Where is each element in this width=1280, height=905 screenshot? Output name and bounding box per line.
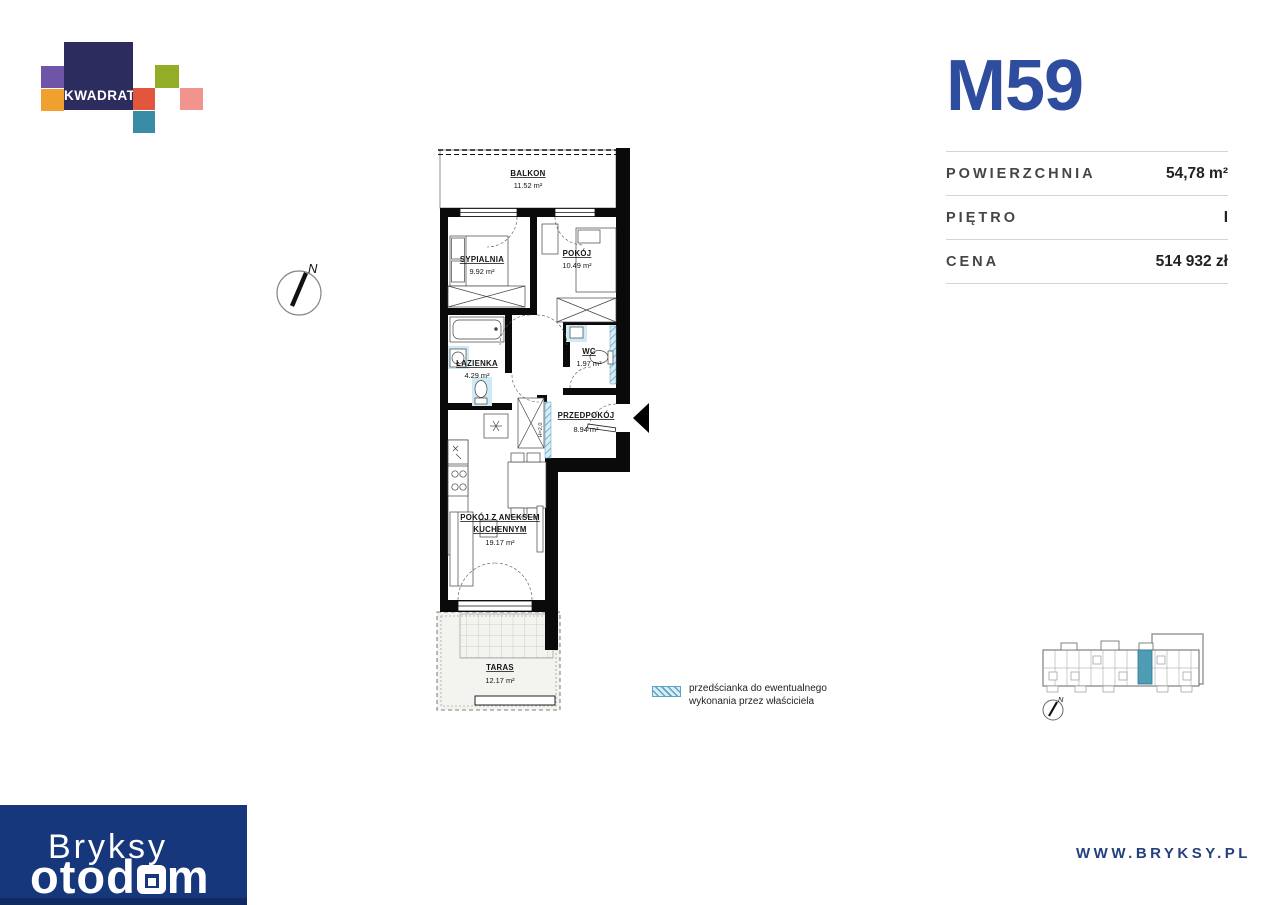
room-label-przedpokoj: PRZEDPOKÓJ xyxy=(558,411,615,420)
room-area-sypialnia: 9.92 m² xyxy=(469,267,495,276)
agency-logo-box: Bryksy otodm xyxy=(0,805,247,905)
room-label-pokoj-z-aneksem-2: KUCHENNYM xyxy=(473,525,526,534)
detail-label: PIĘTRO xyxy=(946,210,1018,226)
terrace-area xyxy=(437,612,560,710)
compass-north-label: N xyxy=(308,261,318,276)
kwadrat-logo: KWADRAT xyxy=(41,42,246,134)
website-url: WWW.BRYKSY.PL xyxy=(1076,845,1251,862)
watermark-square-glyph xyxy=(137,865,166,894)
room-label-taras: TARAS xyxy=(486,663,514,672)
detail-value: I xyxy=(1224,209,1228,227)
room-label-balkon: BALKON xyxy=(510,169,545,178)
room-area-balkon: 11.52 m² xyxy=(514,181,543,190)
balcony-area xyxy=(438,150,618,208)
room-label-wc: WC xyxy=(582,347,596,356)
site-plan-thumbnail: N xyxy=(1035,622,1205,724)
site-plan-unit-highlight xyxy=(1138,650,1152,684)
room-area-taras: 12.17 m² xyxy=(485,676,515,685)
room-area-pokoj-z-aneksem: 19.17 m² xyxy=(485,538,515,547)
room-label-lazienka: ŁAZIENKA xyxy=(456,359,498,368)
room-area-pokoj: 10.49 m² xyxy=(562,261,592,270)
logo-wordmark: KWADRAT xyxy=(64,88,133,103)
logo-square-navy: KWADRAT xyxy=(64,42,133,110)
legend-line1: przedścianka do ewentualnego xyxy=(689,683,827,696)
site-compass-north-label: N xyxy=(1058,695,1064,704)
logo-square-purple xyxy=(41,66,64,88)
room-area-lazienka: 4.29 m² xyxy=(464,371,490,380)
logo-square-pink xyxy=(180,88,203,110)
compass-icon: N xyxy=(274,258,328,320)
otodom-watermark: otodm xyxy=(30,849,210,904)
unit-details-table: POWIERZCHNIA 54,78 m² PIĘTRO I CENA 514 … xyxy=(946,151,1228,284)
watermark-text-2: m xyxy=(167,850,210,903)
logo-square-red xyxy=(133,88,155,110)
room-label-pokoj: POKÓJ xyxy=(563,249,592,258)
legend-hatch-swatch xyxy=(652,686,681,697)
legend-line2: wykonania przez właściciela xyxy=(689,696,827,709)
partition-hatch-hall xyxy=(545,402,551,458)
logo-square-orange xyxy=(41,89,64,111)
floor-plan: BALKON 11.52 m² SYPIALNIA 9.92 m² POKÓJ … xyxy=(420,140,660,720)
unit-id-heading: M59 xyxy=(946,50,1083,122)
detail-label: CENA xyxy=(946,254,999,270)
room-area-wc: 1.97 m² xyxy=(576,359,602,368)
detail-row-floor: PIĘTRO I xyxy=(946,195,1228,239)
wall-height-note: H=2,0 xyxy=(538,422,544,437)
room-area-przedpokoj: 8.94 m² xyxy=(573,425,599,434)
entrance-arrow-icon xyxy=(633,403,649,433)
detail-value: 514 932 zł xyxy=(1156,253,1228,271)
detail-row-price: CENA 514 932 zł xyxy=(946,239,1228,284)
logo-square-green xyxy=(155,65,179,88)
logo-square-teal xyxy=(133,111,155,133)
detail-label: POWIERZCHNIA xyxy=(946,166,1096,182)
detail-value: 54,78 m² xyxy=(1166,165,1228,183)
detail-row-area: POWIERZCHNIA 54,78 m² xyxy=(946,151,1228,195)
flyer-page: KWADRAT M59 POWIERZCHNIA 54,78 m² PIĘTRO… xyxy=(0,0,1280,905)
plan-legend: przedścianka do ewentualnego wykonania p… xyxy=(652,683,827,708)
room-label-pokoj-z-aneksem-1: POKÓJ Z ANEKSEM xyxy=(460,513,540,522)
room-label-sypialnia: SYPIALNIA xyxy=(460,255,504,264)
watermark-text-1: otod xyxy=(30,850,136,903)
